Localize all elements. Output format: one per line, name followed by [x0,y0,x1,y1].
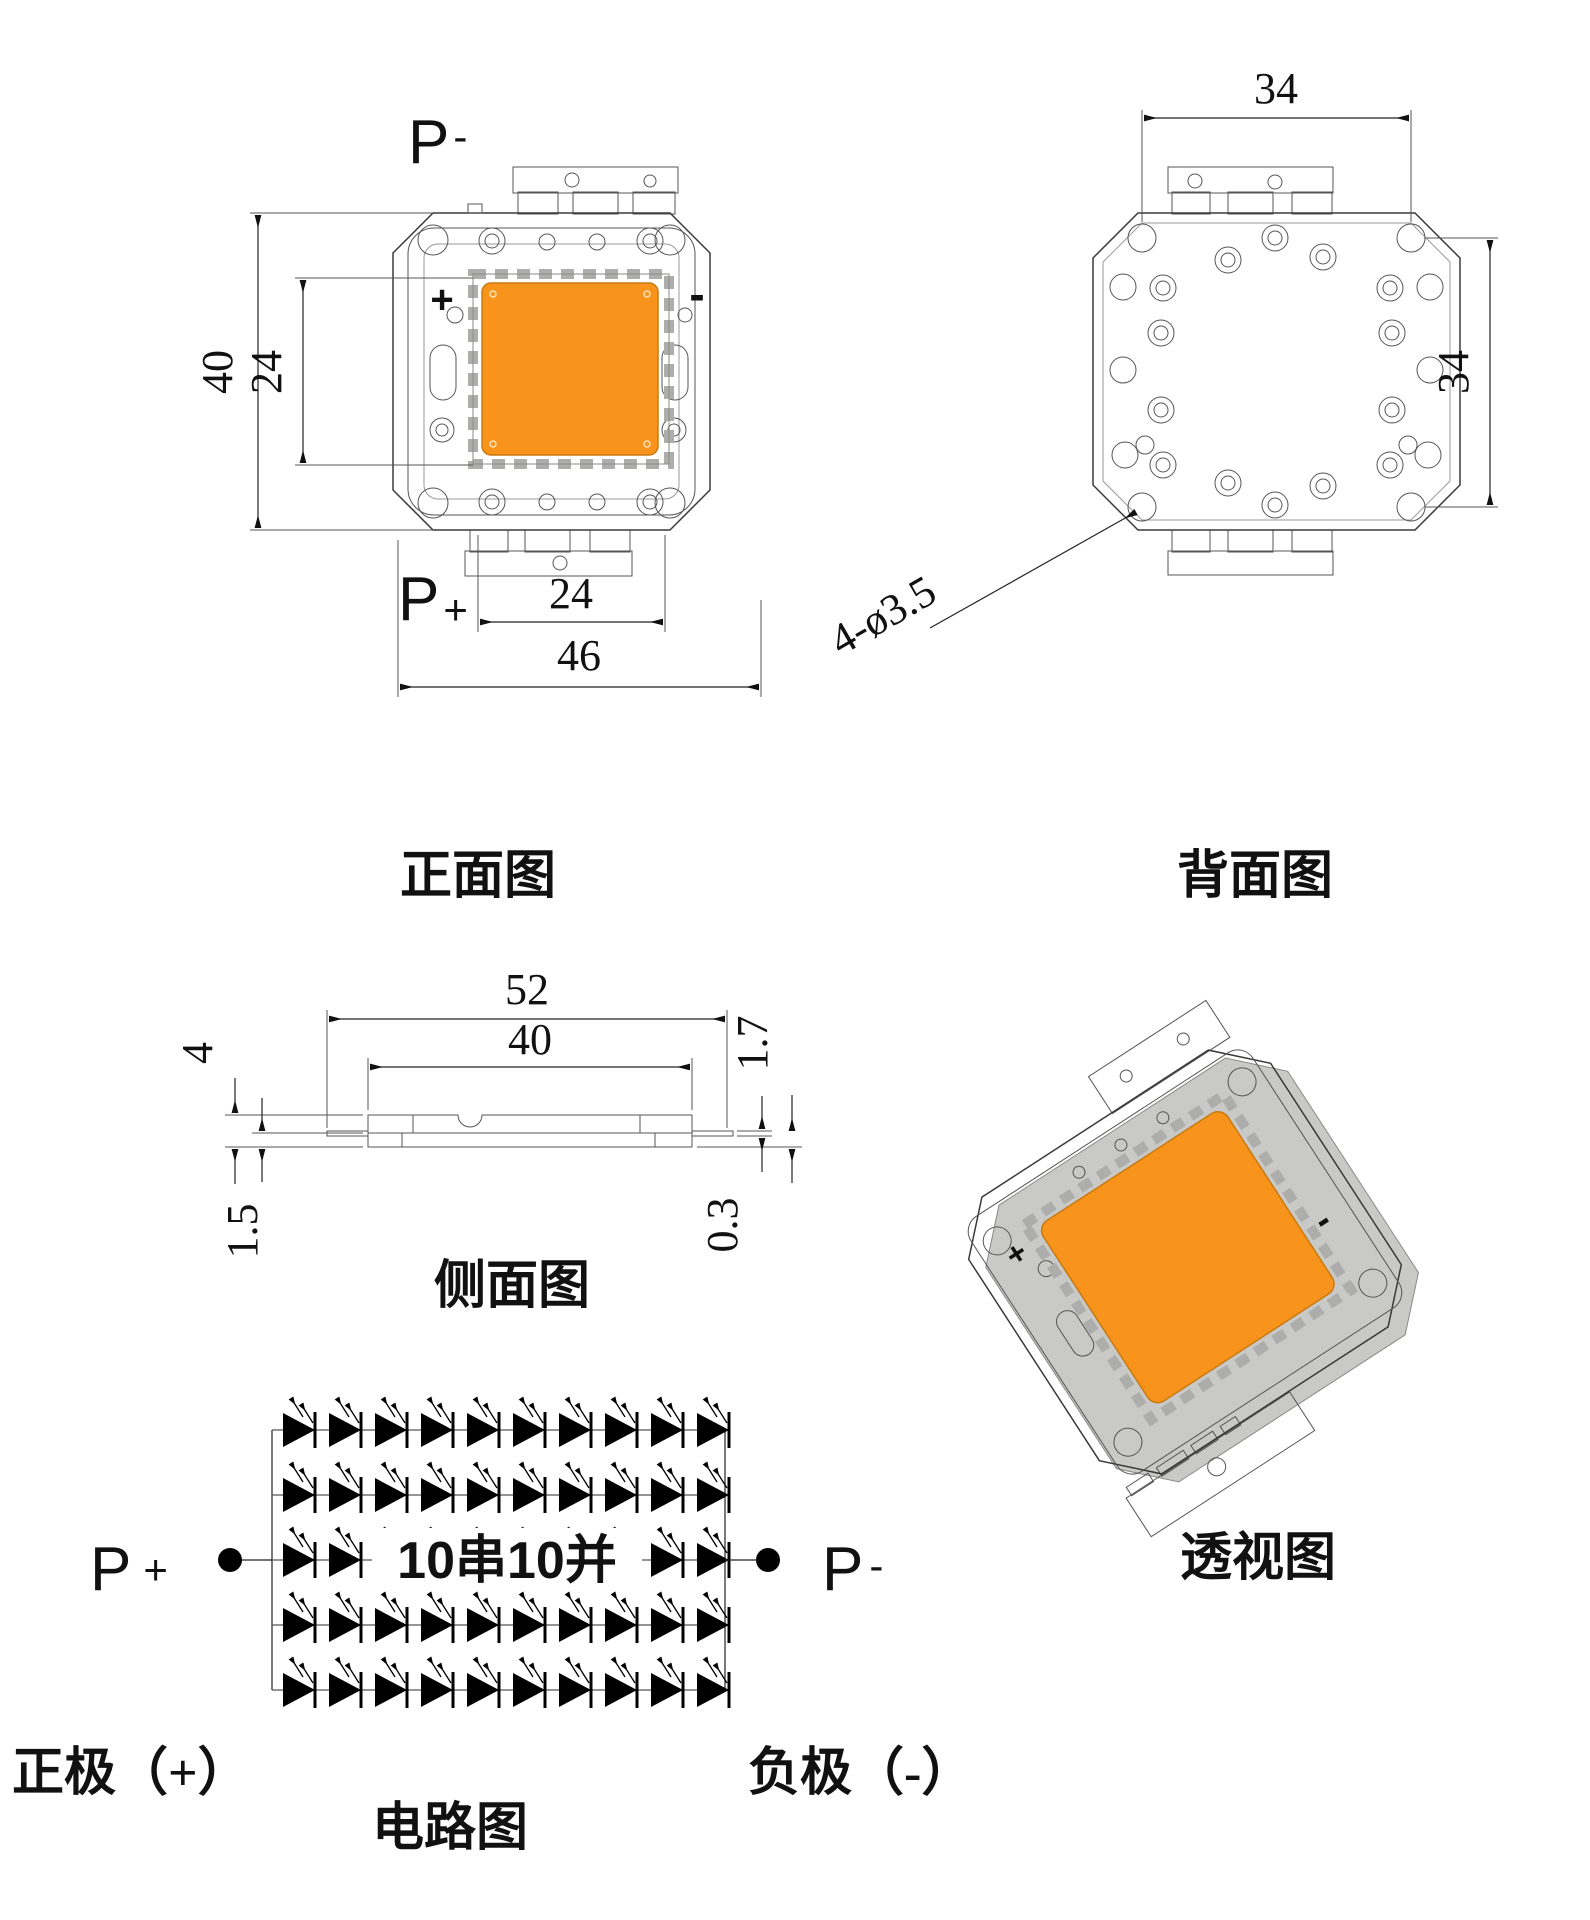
perspective-view: + - [921,984,1460,1538]
back-corner-holes [1128,224,1425,521]
back-plate [1093,213,1460,530]
neg-terminal-label: P- [822,1535,883,1604]
side-dimensions: 52 40 4 1.5 0.3 1.7 [173,965,802,1259]
dim-front-width: 46 [557,631,601,680]
dim-side-pin: 0.3 [698,1198,747,1253]
dim-front-tab: 24 [549,569,593,618]
circuit-config-label: 10串10并 [397,1532,617,1590]
back-bottom-tab [1168,530,1333,575]
pos-terminal-dot [218,1548,242,1572]
front-edge-notch [468,204,482,213]
front-pminus-label: P- [408,108,467,177]
dim-back-height: 34 [1429,350,1478,394]
front-view: + - P- P+ 40 24 24 46 正面图 [193,108,761,905]
side-body-ticks [402,1115,655,1147]
dim-front-emitter: 24 [242,350,291,394]
dim-side-height: 4 [173,1042,222,1064]
circuit-diagram: 10串10并 P+ P- 正极（+） 负极（-） 电路图 [12,1398,973,1857]
circuit-label: 电路图 [372,1799,528,1857]
dim-back-width: 34 [1254,64,1298,113]
front-minus-mark: - [689,268,704,320]
dim-side-outer: 52 [505,965,549,1014]
cathode-label: 负极（-） [748,1744,973,1802]
front-view-label: 正面图 [400,848,556,905]
back-plain-holes [1110,274,1443,468]
dim-side-body: 40 [508,1015,552,1064]
pos-terminal-label: P+ [90,1535,168,1604]
anode-label: 正极（+） [12,1744,250,1802]
front-emitter [482,283,658,455]
neg-terminal-dot [756,1548,780,1572]
dim-front-height: 40 [193,350,242,394]
side-body-top [368,1115,692,1133]
perspective-view-label: 透视图 [1180,1529,1336,1587]
back-dimensions: 34 34 4-ø3.5 [821,64,1498,665]
back-view: 34 34 4-ø3.5 背面图 [821,64,1498,905]
side-body-base [368,1133,692,1147]
datasheet-drawing: + - P- P+ 40 24 24 46 正面图 [0,0,1590,1920]
dim-side-base: 1.5 [218,1204,267,1259]
front-top-tab [513,167,678,214]
back-ring-holes [1148,225,1405,518]
side-view-label: 侧面图 [434,1257,590,1315]
back-top-tab [1168,167,1333,214]
drawing-svg: + - P- P+ 40 24 24 46 正面图 [0,0,1590,1920]
front-pplus-label: P+ [398,565,468,634]
back-hole-note: 4-ø3.5 [821,566,944,665]
front-plus-mark: + [430,278,453,322]
dim-side-right: 1.7 [728,1016,777,1071]
back-view-label: 背面图 [1177,847,1333,905]
side-view: 52 40 4 1.5 0.3 1.7 侧面图 [173,965,802,1315]
